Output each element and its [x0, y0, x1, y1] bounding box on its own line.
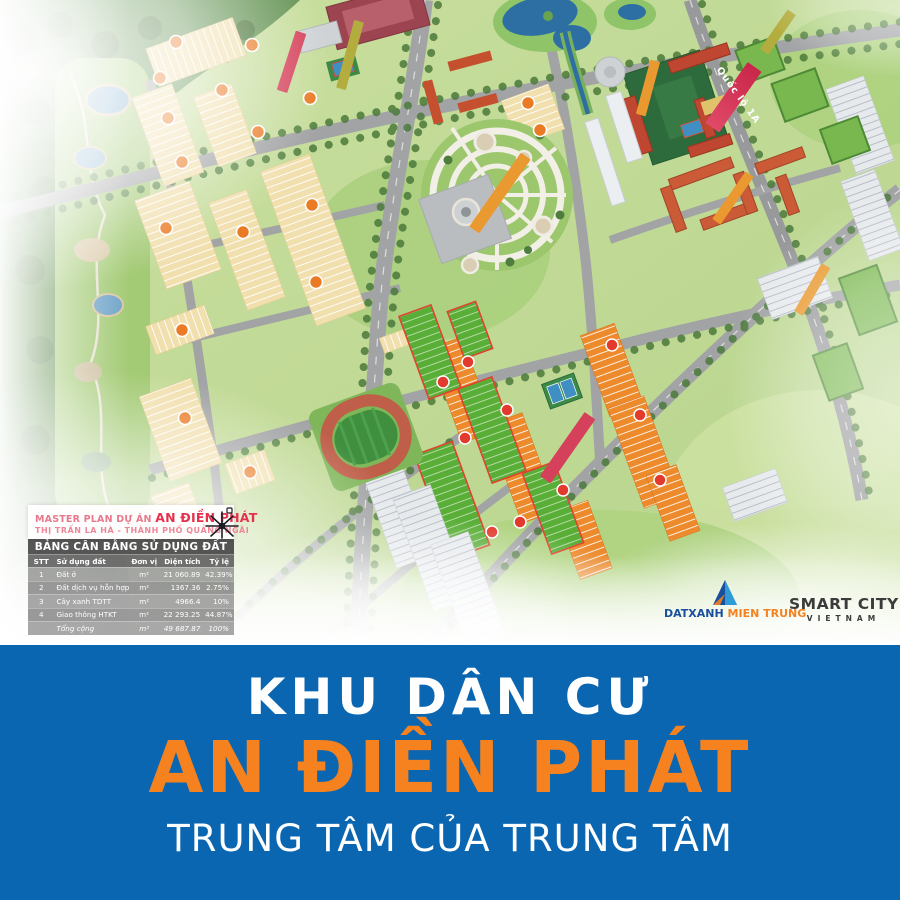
- smart-city-logo: SMART CITY VIETNAM: [789, 595, 893, 623]
- col-ty-le: Tỷ lệ: [205, 557, 234, 566]
- table-row: 4 Giao thông HTKT m² 22 293.25 44.87%: [28, 608, 234, 622]
- title-banner: KHU DÂN CƯ AN ĐIỀN PHÁT TRUNG TÂM CỦA TR…: [0, 645, 900, 900]
- master-plan-card: MASTER PLAN DỰ ÁN AN ĐIỀN PHÁT THỊ TRẤN …: [28, 505, 234, 635]
- card-title: MASTER PLAN DỰ ÁN AN ĐIỀN PHÁT: [35, 510, 204, 525]
- table-row: 2 Đất dịch vụ hỗn hợp m² 1367.36 2.75%: [28, 581, 234, 595]
- card-subtitle: THỊ TRẤN LA HÀ - THÀNH PHỐ QUẢNG NGÃI: [35, 526, 204, 535]
- smart-city-wordmark: SMART CITY: [789, 595, 893, 613]
- banner-line2: AN ĐIỀN PHÁT: [0, 727, 900, 809]
- starburst-icon: [204, 506, 240, 540]
- datxanh-mien-trung-logo: DATXANH MIEN TRUNG: [664, 580, 786, 620]
- table-row: 1 Đất ở m² 21 060.89 42.39%: [28, 567, 234, 581]
- table-header-row: STT Sử dụng đất Đơn vị Diện tích Tỷ lệ: [28, 554, 234, 567]
- banner-line1: KHU DÂN CƯ: [0, 670, 900, 725]
- datxanh-triangle-icon: [710, 580, 740, 605]
- smart-city-country: VIETNAM: [789, 614, 893, 623]
- col-stt: STT: [28, 557, 55, 566]
- col-dien-tich: Diện tích: [158, 557, 205, 566]
- card-header: MASTER PLAN DỰ ÁN AN ĐIỀN PHÁT THỊ TRẤN …: [28, 505, 234, 539]
- datxanh-wordmark: DATXANH MIEN TRUNG: [664, 607, 786, 620]
- land-use-table-title: BẢNG CÂN BẰNG SỬ DỤNG ĐẤT: [28, 539, 234, 554]
- col-su-dung-dat: Sử dụng đất: [55, 557, 130, 566]
- table-row: 3 Cây xanh TDTT m² 4966.4 10%: [28, 594, 234, 608]
- poster: Quốc lộ 1A: [0, 0, 900, 900]
- table-total-row: Tổng cộng m² 49 687.87 100%: [28, 621, 234, 635]
- land-use-table: STT Sử dụng đất Đơn vị Diện tích Tỷ lệ 1…: [28, 554, 234, 635]
- col-don-vi: Đơn vị: [130, 557, 159, 566]
- card-title-prefix: MASTER PLAN DỰ ÁN: [35, 514, 155, 525]
- banner-line3: TRUNG TÂM CỦA TRUNG TÂM: [0, 819, 900, 860]
